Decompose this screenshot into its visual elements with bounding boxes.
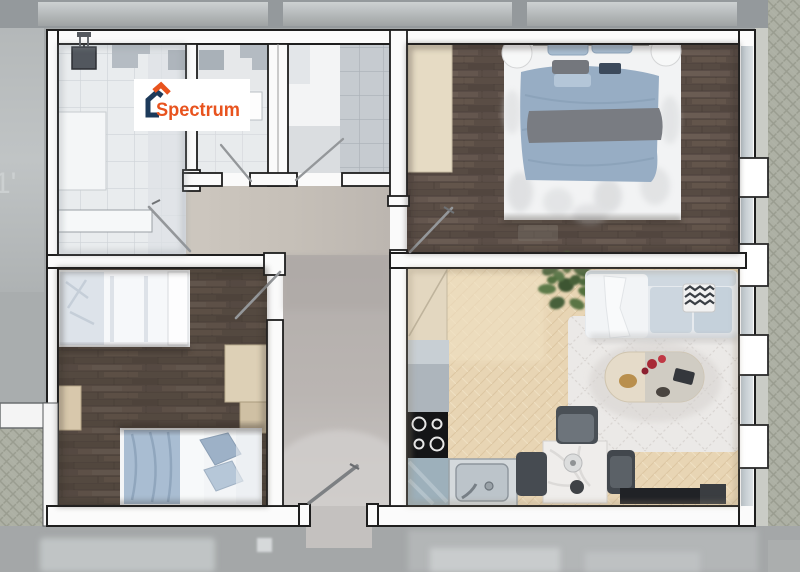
svg-text:Spectrum: Spectrum: [156, 100, 240, 121]
svg-text:1': 1': [0, 167, 16, 200]
